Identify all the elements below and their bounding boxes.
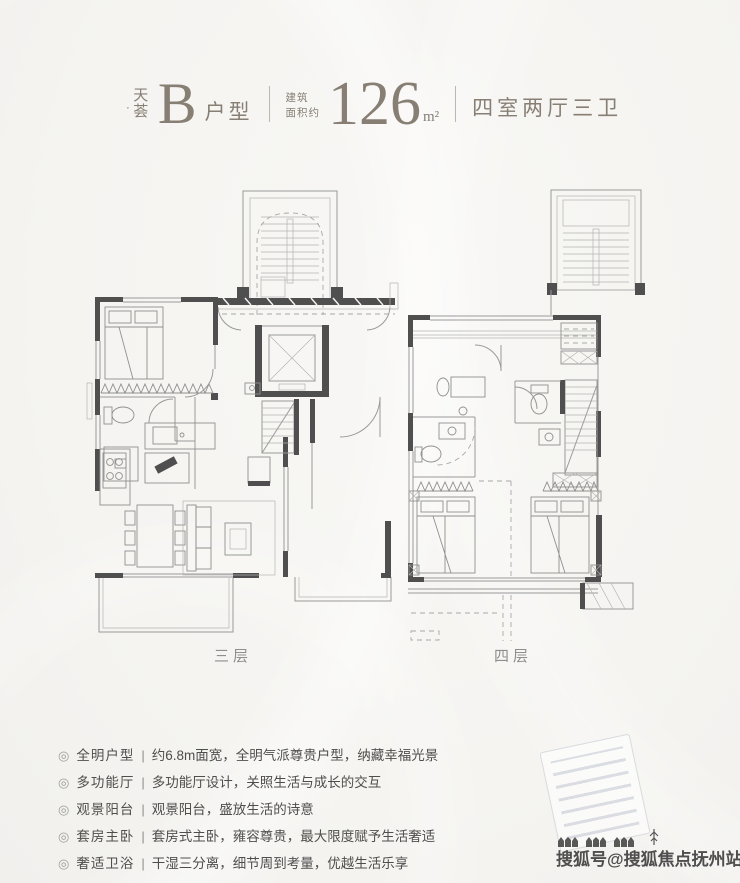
toilet-icon: [104, 407, 134, 424]
feature-term: 观景阳台: [76, 798, 134, 818]
feature-list: ◎ 全明户型 | 约6.8m面宽，全明气派尊贵户型，纳藏幸福光景 ◎ 多功能厅 …: [58, 744, 438, 879]
stove-icon: [103, 453, 126, 488]
elevator-icon: [255, 325, 329, 397]
water-heater-icon: [248, 457, 270, 486]
bullet-icon: ◎: [58, 775, 69, 791]
balcony-4f: [408, 589, 598, 641]
flyer-page: 天 · 荟 B 户型 建筑 面积约 126 m² 四室两厅三卫: [0, 0, 740, 883]
feature-separator: |: [141, 802, 144, 817]
feature-desc: 干湿三分离，细节周到考量，优越生活乐享: [152, 852, 409, 872]
bed-icon: [531, 497, 589, 573]
unit-walls: [87, 297, 391, 578]
brand-mark: 天 · 荟: [130, 88, 152, 121]
living-room-3f: [183, 501, 275, 575]
watermark-account-text: 搜狐号@搜狐焦点抚州站: [556, 845, 740, 870]
stairwell-icon: [237, 191, 343, 315]
toilet-icon: [415, 446, 441, 462]
coffee-table-icon: [225, 523, 251, 555]
shower-icon: [104, 447, 138, 481]
feature-row: ◎ 奢适卫浴 | 干湿三分离，细节周到考量，优越生活乐享: [58, 852, 438, 879]
bedroom-4f-left: [409, 482, 475, 575]
room-divider-dashed: [479, 481, 511, 577]
toilet-icon: [531, 385, 548, 414]
wardrobe-icon: [417, 482, 473, 491]
balcony-3f: [99, 578, 233, 632]
ac-platform: [580, 583, 633, 609]
rug: [183, 501, 275, 575]
area-caption: 建筑 面积约: [286, 91, 321, 120]
area-unit: m²: [423, 109, 439, 126]
sink-icon: [439, 423, 465, 439]
feature-separator: |: [141, 748, 144, 763]
feature-term: 多功能厅: [76, 771, 134, 791]
wardrobe-icon: [543, 482, 598, 491]
floorplan-fourth-floor: [403, 185, 648, 650]
brand-top-char: 天: [130, 88, 152, 105]
sink-icon: [539, 429, 560, 445]
bathroom-4f-a: [515, 381, 597, 487]
header-divider: [455, 86, 456, 122]
feature-term: 套房主卧: [76, 825, 134, 845]
bullet-icon: ◎: [58, 829, 69, 845]
feature-row: ◎ 套房主卧 | 套房式主卧，雍容尊贵，最大限度赋予生活奢适: [58, 825, 438, 852]
feature-desc: 约6.8m面宽，全明气派尊贵户型，纳藏幸福光景: [152, 744, 439, 764]
bullet-icon: ◎: [58, 748, 69, 764]
bedroom-3f: [101, 307, 213, 397]
kitchen-3f: [100, 423, 215, 505]
bed-icon: [105, 307, 163, 379]
brand-dot: ·: [126, 101, 130, 114]
feature-row: ◎ 观景阳台 | 观景阳台，盛放生活的诗意: [58, 798, 438, 825]
brand-bottom-char: 荟: [130, 104, 152, 121]
feature-separator: |: [141, 829, 144, 844]
closet-icon: [561, 323, 597, 364]
stairwell-icon: [547, 190, 645, 315]
bullet-icon: ◎: [58, 856, 69, 872]
feature-desc: 多功能厅设计，关照生活与成长的交互: [152, 771, 382, 791]
stairs-down-icon: [262, 399, 299, 455]
feature-row: ◎ 多功能厅 | 多功能厅设计，关照生活与成长的交互: [58, 771, 438, 798]
feature-separator: |: [141, 856, 144, 871]
room-layout-text: 四室两厅三卫: [472, 92, 622, 122]
header: 天 · 荟 B 户型 建筑 面积约 126 m² 四室两厅三卫: [6, 72, 740, 136]
bed-icon: [417, 497, 475, 573]
feature-term: 奢适卫浴: [76, 852, 134, 872]
utility-platform: [295, 573, 391, 601]
stairs-up-icon: [560, 380, 597, 475]
watermark-tower-icon: [648, 828, 660, 846]
dining-table-icon: [125, 505, 185, 567]
floor-label-third: 三层: [193, 645, 273, 666]
feature-term: 全明户型: [76, 744, 134, 764]
unit-type-letter: B: [158, 75, 197, 133]
feature-row: ◎ 全明户型 | 约6.8m面宽，全明气派尊贵户型，纳藏幸福光景: [58, 744, 438, 771]
feature-desc: 套房式主卧，雍容尊贵，最大限度赋予生活奢适: [152, 825, 436, 845]
bullet-icon: ◎: [58, 802, 69, 818]
sofa-icon: [187, 505, 211, 571]
feature-desc: 观景阳台，盛放生活的诗意: [152, 798, 314, 818]
desk-icon: [437, 377, 485, 415]
feature-separator: |: [141, 775, 144, 790]
watermark-ghost-lines: [550, 746, 639, 840]
floorplan-third-floor: [85, 185, 400, 645]
wardrobe-icon: [101, 384, 213, 393]
area-value: 126: [328, 73, 421, 135]
unit-type-label: 户型: [205, 96, 253, 126]
bedroom-4f-right: [531, 482, 601, 575]
bathroom-4f-b: [413, 417, 475, 477]
header-divider: [269, 86, 270, 122]
floor-label-fourth: 四层: [473, 645, 553, 666]
